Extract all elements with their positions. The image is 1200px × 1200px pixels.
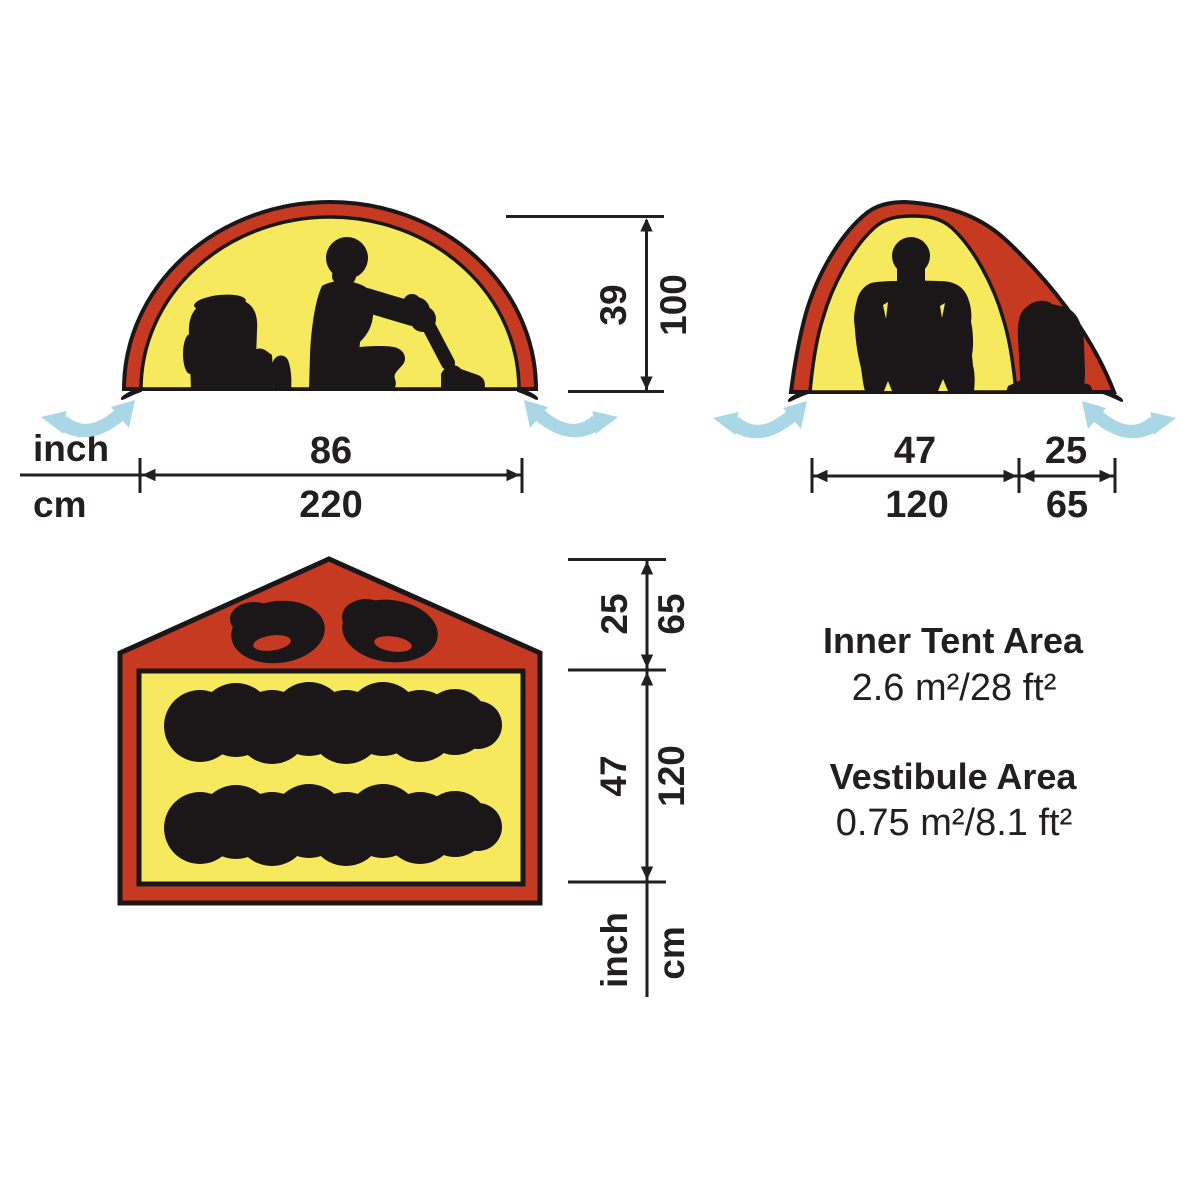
svg-text:47: 47 — [894, 430, 936, 472]
svg-text:25: 25 — [1045, 430, 1087, 472]
svg-text:cm: cm — [33, 484, 86, 525]
svg-text:cm: cm — [651, 926, 692, 979]
svg-text:120: 120 — [651, 745, 692, 807]
svg-text:0.75 m²/8.1 ft²: 0.75 m²/8.1 ft² — [836, 802, 1073, 844]
svg-text:Vestibule Area: Vestibule Area — [830, 756, 1078, 797]
svg-text:47: 47 — [593, 755, 634, 796]
svg-text:100: 100 — [653, 274, 694, 336]
svg-text:2.6 m²/28 ft²: 2.6 m²/28 ft² — [852, 667, 1057, 709]
svg-text:Inner Tent Area: Inner Tent Area — [823, 620, 1084, 661]
svg-text:220: 220 — [299, 484, 362, 526]
svg-text:25: 25 — [594, 593, 635, 634]
svg-text:120: 120 — [885, 484, 948, 526]
svg-text:65: 65 — [651, 593, 692, 634]
svg-text:inch: inch — [594, 912, 635, 988]
svg-text:65: 65 — [1046, 484, 1088, 526]
svg-text:39: 39 — [593, 284, 634, 325]
svg-text:86: 86 — [310, 430, 352, 472]
